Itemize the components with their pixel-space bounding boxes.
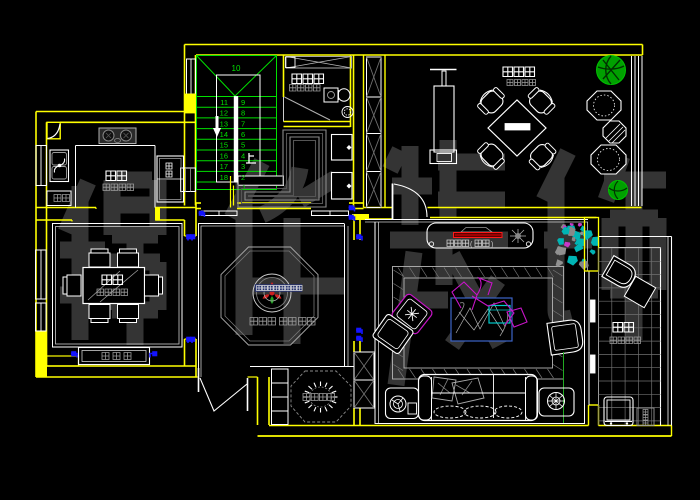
svg-text:9: 9 <box>241 98 245 107</box>
svg-text:13: 13 <box>220 119 228 128</box>
svg-text:8: 8 <box>241 109 245 118</box>
svg-text:14: 14 <box>220 130 228 139</box>
svg-text:16: 16 <box>220 151 228 160</box>
svg-text:7: 7 <box>241 119 245 128</box>
svg-text:6: 6 <box>241 130 245 139</box>
svg-text:12: 12 <box>220 109 228 118</box>
svg-text:1: 1 <box>242 183 246 192</box>
svg-text:15: 15 <box>220 141 228 150</box>
svg-text:): ) <box>491 242 493 249</box>
svg-text:17: 17 <box>220 162 228 171</box>
svg-text:5: 5 <box>241 141 245 150</box>
svg-text:2: 2 <box>241 173 245 182</box>
svg-text:3: 3 <box>241 162 245 171</box>
svg-text:4: 4 <box>241 151 245 160</box>
svg-text:11: 11 <box>220 98 228 107</box>
svg-text:18: 18 <box>220 173 228 182</box>
svg-text:10: 10 <box>232 64 241 73</box>
